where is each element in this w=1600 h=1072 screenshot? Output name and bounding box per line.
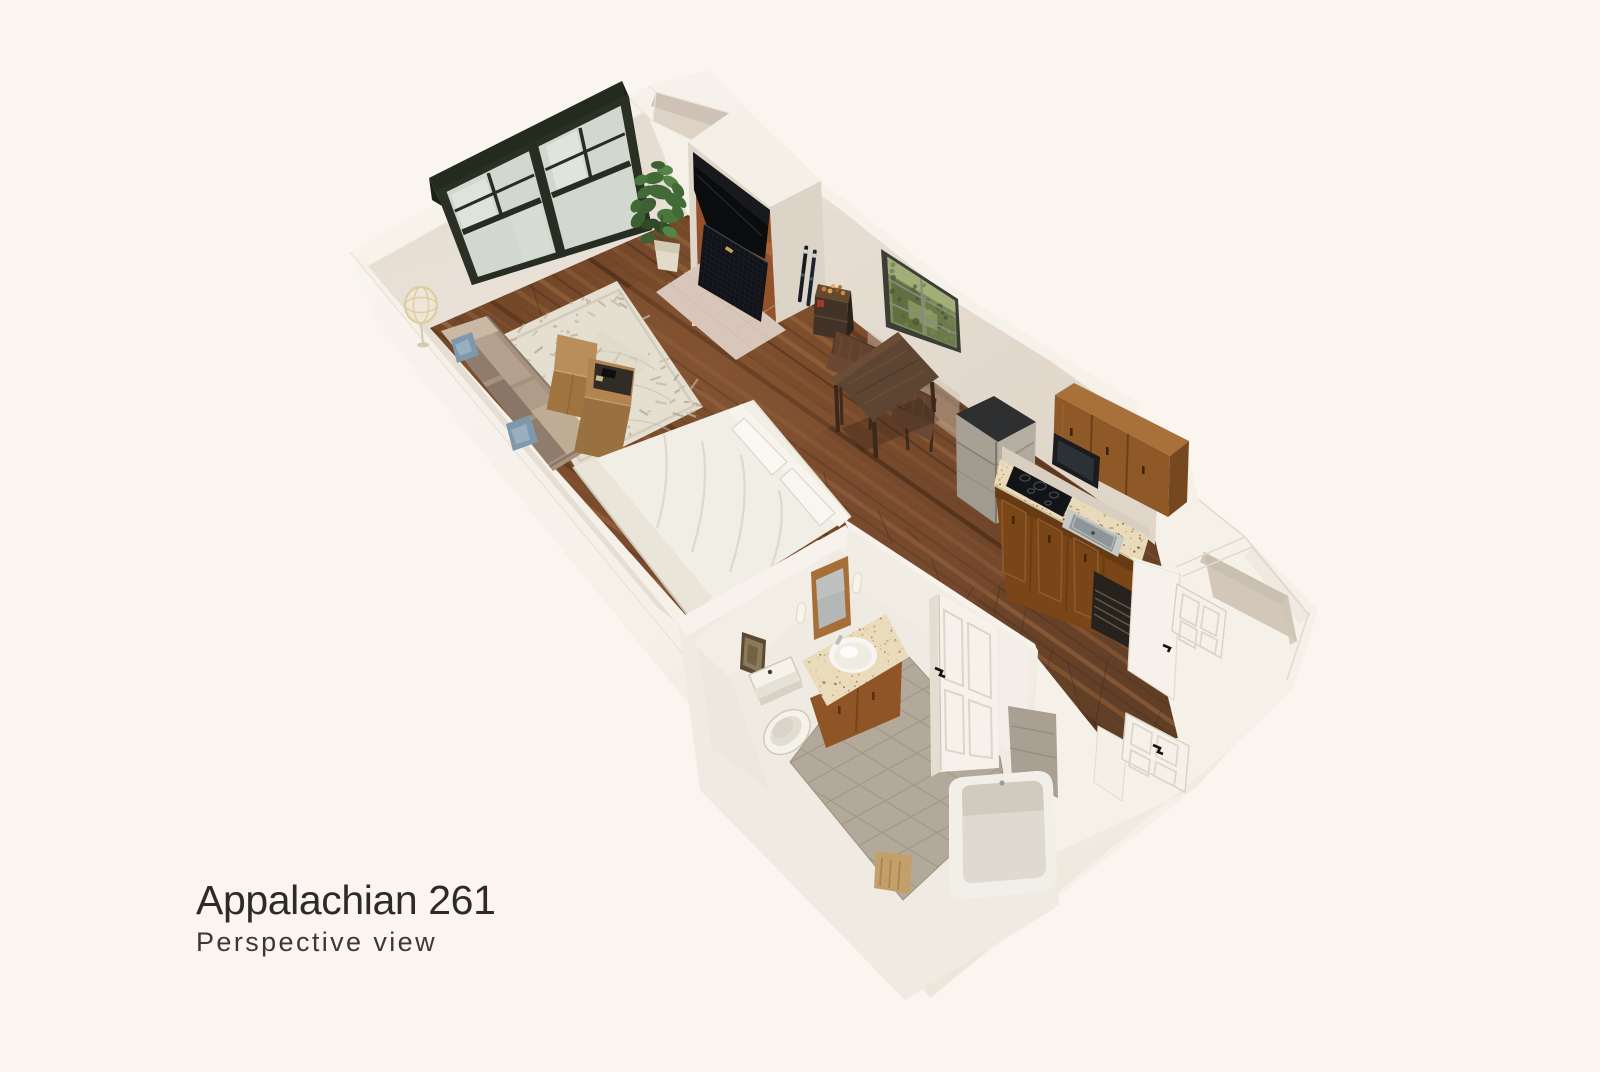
svg-text:Appalachian 261: Appalachian 261 (196, 877, 495, 923)
svg-text:Perspective view: Perspective view (196, 927, 437, 957)
